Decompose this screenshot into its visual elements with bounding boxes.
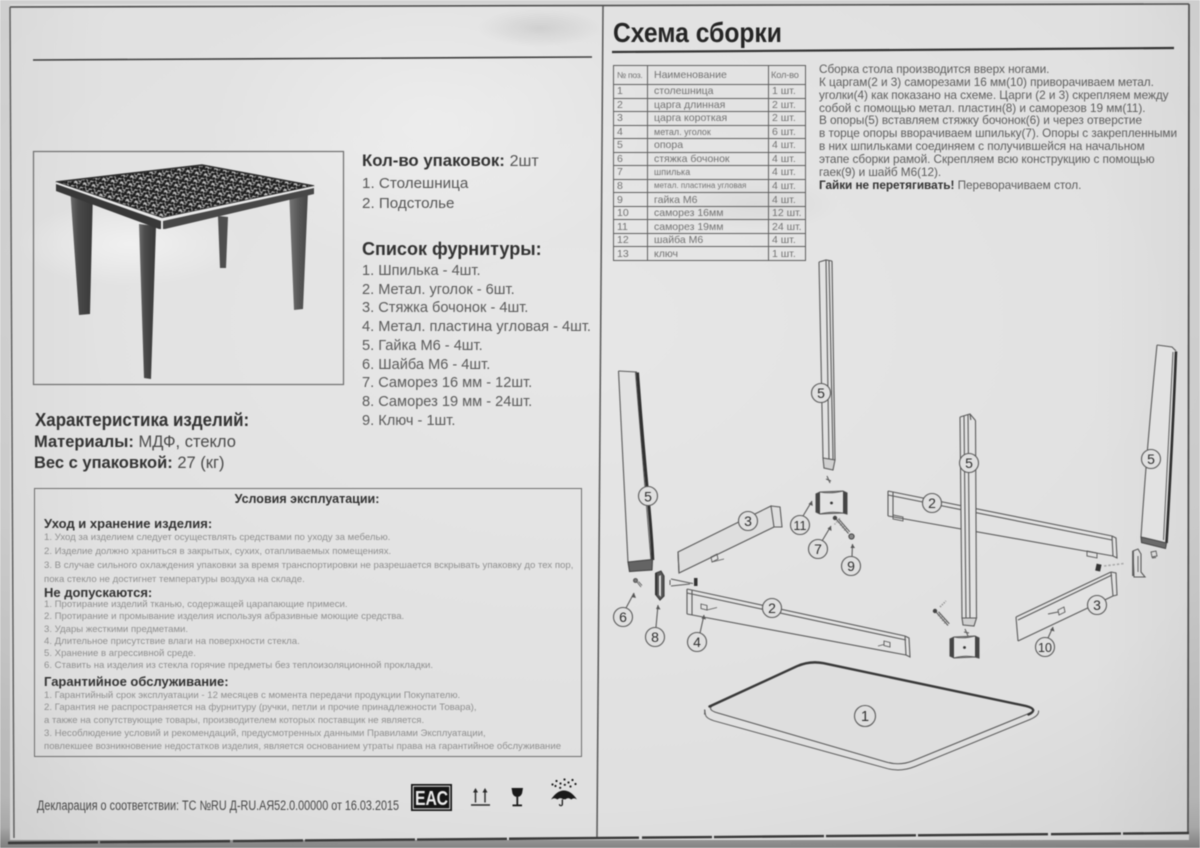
svg-text:3: 3	[744, 513, 752, 529]
svg-text:11: 11	[794, 519, 807, 533]
svg-text:2: 2	[928, 495, 936, 511]
svg-text:5: 5	[1147, 451, 1155, 467]
svg-text:7: 7	[814, 541, 822, 557]
svg-text:5: 5	[644, 489, 652, 505]
svg-text:5: 5	[817, 385, 825, 401]
svg-text:2: 2	[768, 600, 776, 616]
svg-text:10: 10	[1038, 641, 1052, 655]
svg-text:9: 9	[847, 558, 855, 574]
svg-text:4: 4	[693, 634, 701, 650]
svg-text:5: 5	[965, 455, 973, 471]
svg-text:6: 6	[619, 609, 627, 625]
svg-text:ЕАС: ЕАС	[415, 788, 448, 810]
svg-text:1: 1	[861, 709, 869, 725]
svg-text:3: 3	[1093, 597, 1101, 613]
svg-text:8: 8	[651, 629, 659, 645]
